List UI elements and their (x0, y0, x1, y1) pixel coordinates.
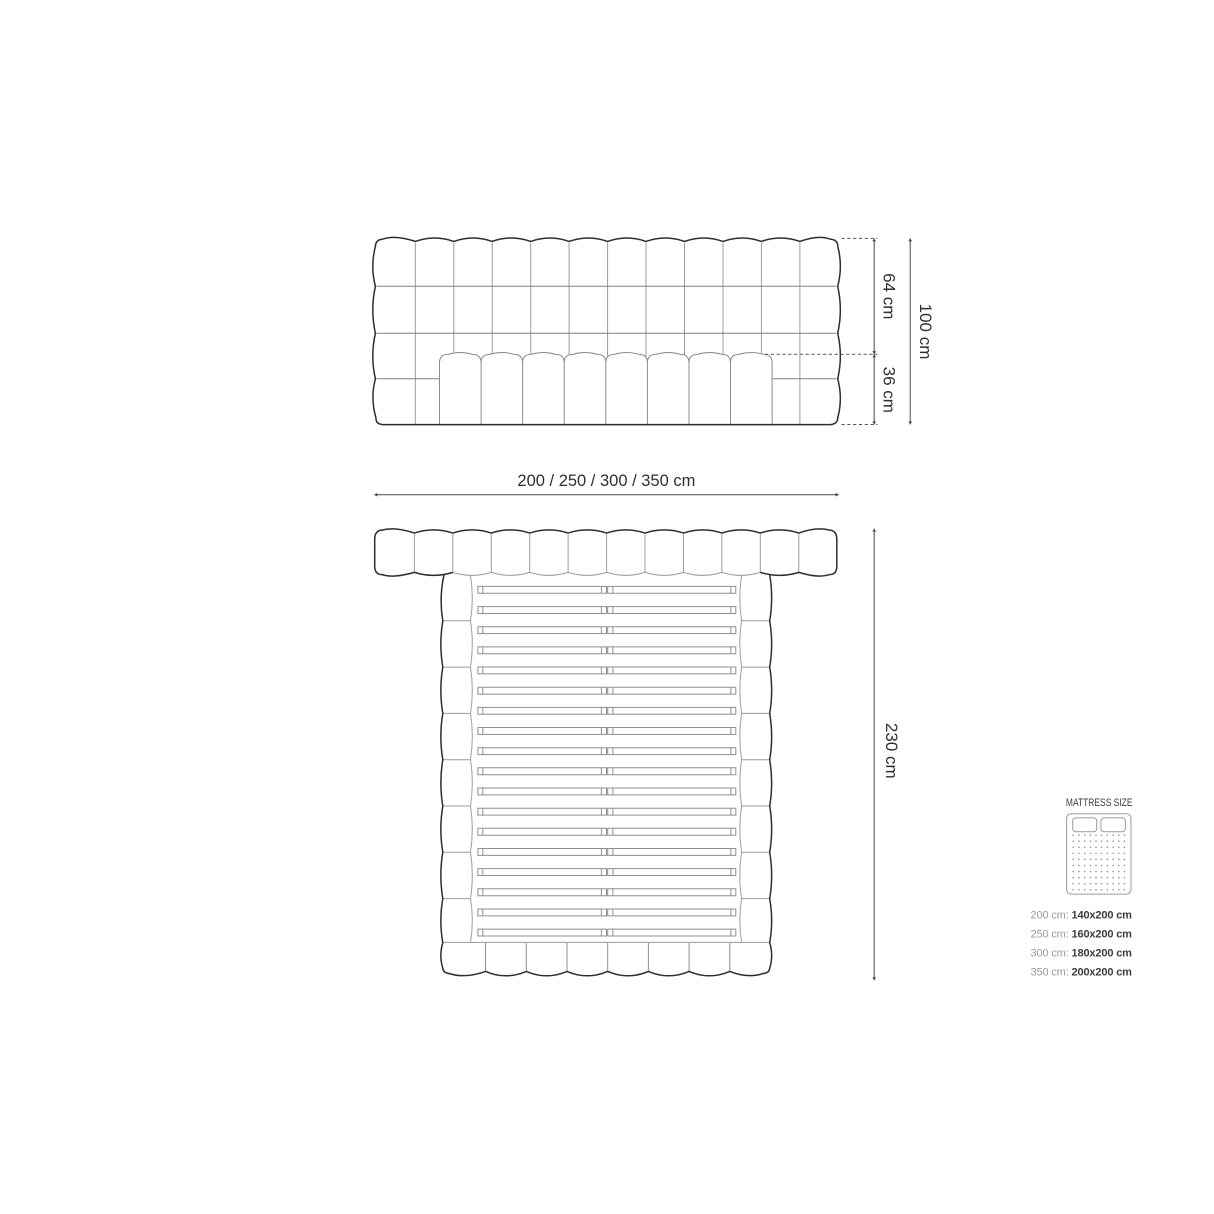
svg-text:MATTRESS SIZE: MATTRESS SIZE (1066, 797, 1133, 809)
svg-text:36 cm: 36 cm (880, 367, 899, 413)
svg-text:300 cm: 180x200 cm: 300 cm: 180x200 cm (1031, 948, 1133, 960)
svg-text:350 cm: 200x200 cm: 350 cm: 200x200 cm (1031, 967, 1133, 979)
svg-text:64 cm: 64 cm (880, 273, 899, 319)
svg-text:100 cm: 100 cm (916, 304, 935, 360)
svg-text:200 / 250 / 300 / 350 cm: 200 / 250 / 300 / 350 cm (517, 472, 695, 490)
svg-text:250 cm: 160x200 cm: 250 cm: 160x200 cm (1031, 929, 1133, 941)
svg-text:230 cm: 230 cm (882, 723, 901, 779)
svg-text:200 cm: 140x200 cm: 200 cm: 140x200 cm (1031, 909, 1133, 921)
